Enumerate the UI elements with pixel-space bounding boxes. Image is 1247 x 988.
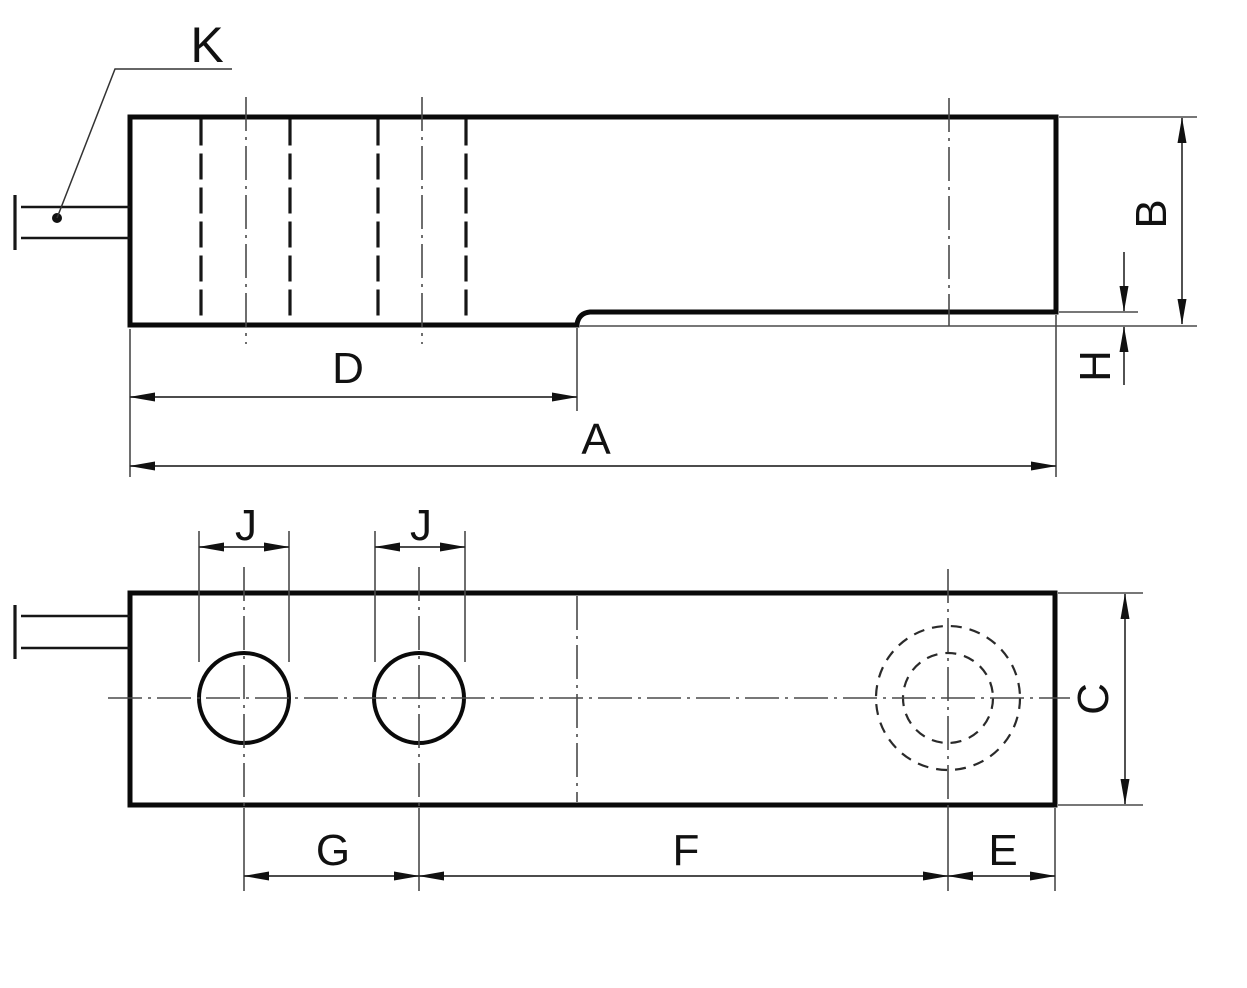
label-D: D — [332, 344, 364, 393]
label-E: E — [988, 826, 1017, 875]
label-H: H — [1071, 350, 1120, 382]
plan-view-dimensions: J J G F E C — [199, 501, 1143, 891]
label-C: C — [1069, 683, 1118, 715]
label-J2: J — [410, 501, 432, 550]
label-F: F — [673, 826, 700, 875]
label-A: A — [581, 415, 611, 464]
plan-view — [15, 567, 1070, 808]
side-view: K — [15, 17, 1056, 344]
label-B: B — [1127, 199, 1176, 228]
drawing-canvas: K D A B H — [0, 0, 1247, 988]
load-cell-dimension-drawing: K D A B H — [0, 0, 1247, 988]
cable-leader-line — [57, 69, 232, 218]
side-body-outline — [130, 117, 1056, 325]
plan-body-outline — [130, 593, 1055, 805]
label-cable-K: K — [190, 17, 223, 73]
label-J1: J — [235, 501, 257, 550]
label-G: G — [316, 826, 350, 875]
